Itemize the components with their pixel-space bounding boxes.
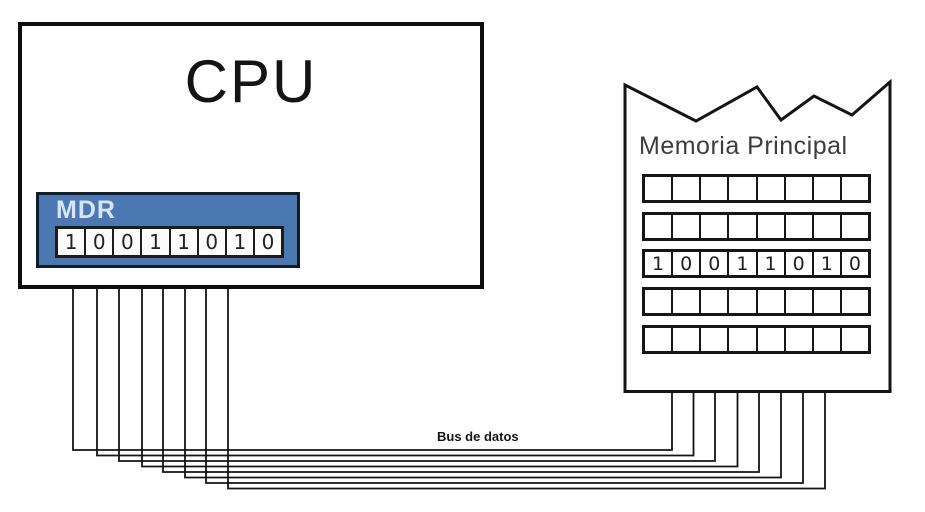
memory-title: Memoria Principal	[639, 132, 848, 161]
memory-cell	[672, 176, 700, 201]
memory-cell	[672, 327, 700, 352]
memory-cell	[700, 327, 728, 352]
memory-cell	[813, 214, 841, 239]
memory-cell	[672, 214, 700, 239]
memory-cell: 1	[757, 251, 785, 276]
memory-cell	[644, 289, 672, 314]
memory-cell	[785, 176, 813, 201]
memory-cell	[700, 289, 728, 314]
memory-cell: 1	[728, 251, 756, 276]
memory-cell	[728, 176, 756, 201]
memory-cell	[644, 327, 672, 352]
memory-cell: 0	[785, 251, 813, 276]
memory-cell	[785, 289, 813, 314]
mdr-bit-row: 10011010	[55, 226, 284, 258]
memory-cell	[757, 214, 785, 239]
mdr-bit-cell: 0	[113, 228, 141, 256]
memory-cell	[644, 214, 672, 239]
memory-cell	[672, 289, 700, 314]
mdr-bit-cell: 0	[85, 228, 113, 256]
memory-cell	[644, 176, 672, 201]
diagram-canvas: CPU MDR 10011010 Memoria Principal 10011…	[0, 0, 925, 512]
mdr-bit-cell: 0	[254, 228, 282, 256]
memory-cell	[813, 289, 841, 314]
memory-cell: 1	[644, 251, 672, 276]
memory-cell	[700, 214, 728, 239]
memory-cell	[785, 327, 813, 352]
memory-cell	[728, 327, 756, 352]
memory-cell	[813, 176, 841, 201]
memory-cell	[813, 327, 841, 352]
memory-row-2: 10011010	[642, 249, 871, 278]
memory-cell	[841, 289, 869, 314]
memory-cell	[841, 176, 869, 201]
bus-wire-1	[97, 288, 694, 456]
mdr-bit-cell: 1	[226, 228, 254, 256]
memory-cell	[757, 289, 785, 314]
bus-label: Bus de datos	[437, 429, 519, 444]
mdr-register: MDR 10011010	[36, 192, 300, 268]
cpu-box: CPU MDR 10011010	[18, 22, 484, 289]
memory-cell	[700, 176, 728, 201]
memory-cell	[757, 176, 785, 201]
memory-cell	[785, 214, 813, 239]
cpu-title: CPU	[22, 52, 480, 112]
memory-cell	[757, 327, 785, 352]
memory-cell: 0	[841, 251, 869, 276]
memory-cell	[728, 214, 756, 239]
mdr-bit-cell: 0	[198, 228, 226, 256]
mdr-bit-cell: 1	[141, 228, 169, 256]
memory-row-4	[642, 325, 871, 354]
mdr-bit-cell: 1	[57, 228, 85, 256]
memory-cell: 1	[813, 251, 841, 276]
mdr-bit-cell: 1	[170, 228, 198, 256]
mdr-label: MDR	[56, 196, 116, 225]
memory-cell	[841, 214, 869, 239]
memory-cell: 0	[672, 251, 700, 276]
memory-grid: 10011010	[642, 174, 871, 354]
memory-row-3	[642, 287, 871, 316]
memory-cell	[841, 327, 869, 352]
memory-row-1	[642, 212, 871, 241]
memory-row-0	[642, 174, 871, 203]
memory-cell: 0	[700, 251, 728, 276]
memory-cell	[728, 289, 756, 314]
